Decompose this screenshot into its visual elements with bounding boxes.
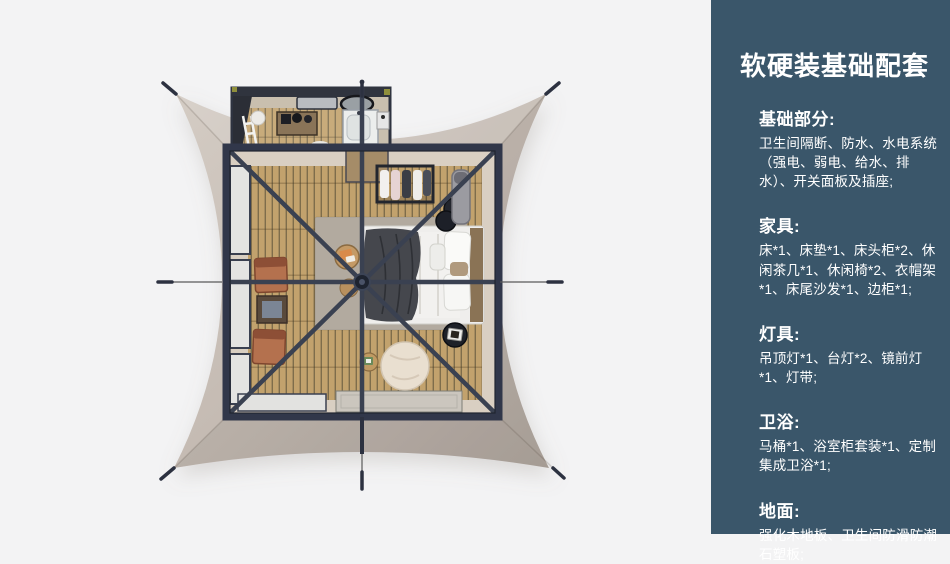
tent-floorplan-svg — [0, 0, 711, 534]
spec-panel: 软硬装基础配套 基础部分: 卫生间隔断、防水、水电系统（强电、弱电、给水、排水）… — [711, 0, 950, 534]
annex-back-wall — [231, 87, 391, 97]
section-heading: 家具: — [759, 212, 938, 237]
section-body: 吊顶灯*1、台灯*2、镜前灯*1、灯带; — [759, 349, 938, 387]
lounge-chair-1 — [254, 257, 287, 292]
left-wall-windows — [230, 166, 250, 404]
bean-bag — [381, 342, 429, 390]
tent-floorplan-illustration — [0, 0, 711, 534]
section-body: 马桶*1、浴室柜套装*1、定制集成卫浴*1; — [759, 437, 938, 475]
clothes-rack — [377, 166, 433, 205]
bathroom-annex — [231, 87, 391, 150]
section-body: 床*1、床垫*1、床头柜*2、休闲茶几*1、休闲椅*2、衣帽架*1、床尾沙发*1… — [759, 241, 938, 298]
section-heading: 地面: — [759, 497, 938, 522]
bottom-window-panel — [238, 394, 326, 411]
bed — [362, 226, 484, 324]
spec-sections: 基础部分: 卫生间隔断、防水、水电系统（强电、弱电、给水、排水）、开关面板及插座… — [759, 105, 938, 564]
headboard — [470, 228, 483, 322]
section-heading: 卫浴: — [759, 408, 938, 433]
section-basics: 基础部分: 卫生间隔断、防水、水电系统（强电、弱电、给水、排水）、开关面板及插座… — [759, 105, 938, 191]
lounge-chair-2 — [252, 329, 285, 364]
section-bathroom: 卫浴: 马桶*1、浴室柜套装*1、定制集成卫浴*1; — [759, 408, 938, 475]
panel-title: 软硬装基础配套 — [740, 46, 942, 83]
entrance-doormat — [336, 391, 462, 412]
stake-ne — [546, 83, 559, 94]
section-furniture: 家具: 床*1、床垫*1、床头柜*2、休闲茶几*1、休闲椅*2、衣帽架*1、床尾… — [759, 212, 938, 298]
section-heading: 基础部分: — [759, 105, 938, 130]
coffee-table — [257, 296, 287, 323]
stake-sw — [161, 468, 174, 479]
section-body: 强化木地板、卫生间防滑防潮石塑板; — [759, 526, 938, 564]
stake-se — [553, 468, 564, 478]
annex-desk — [277, 112, 317, 135]
nightstand-bottom — [443, 323, 467, 347]
stake-nw — [163, 83, 176, 94]
bathroom-cabinet — [377, 112, 389, 129]
bathroom-mirror — [297, 97, 337, 109]
section-lighting: 灯具: 吊顶灯*1、台灯*2、镜前灯*1、灯带; — [759, 320, 938, 387]
section-body: 卫生间隔断、防水、水电系统（强电、弱电、给水、排水）、开关面板及插座; — [759, 134, 938, 191]
section-heading: 灯具: — [759, 320, 938, 345]
section-flooring: 地面: 强化木地板、卫生间防滑防潮石塑板; — [759, 497, 938, 564]
